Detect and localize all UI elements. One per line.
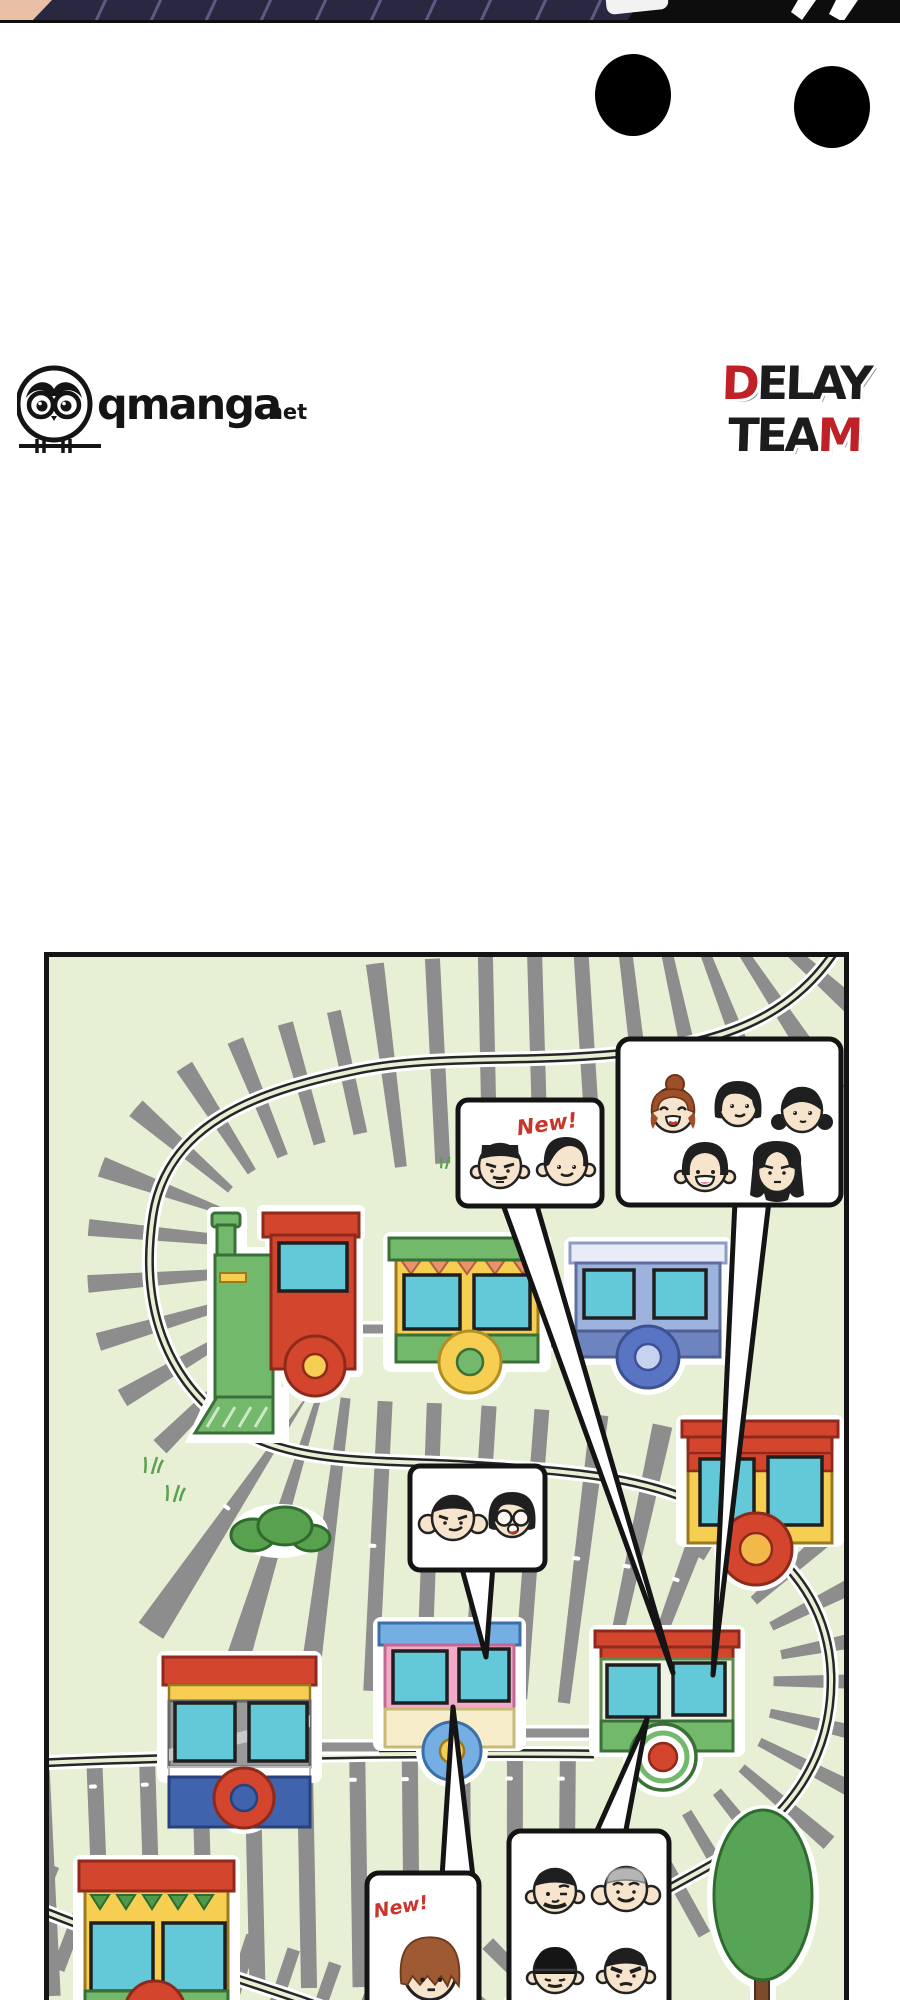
window-right	[673, 1663, 725, 1715]
window-right	[654, 1270, 706, 1318]
loco-hub	[303, 1354, 327, 1378]
train-map-panel: New!	[44, 952, 849, 2000]
qmanga-logo: qmanga .net	[17, 360, 347, 464]
window-left	[175, 1703, 235, 1761]
window-left	[607, 1665, 659, 1717]
roof	[379, 1623, 520, 1645]
roof	[163, 1657, 316, 1685]
hub	[740, 1533, 772, 1565]
strip-bottom-edge	[0, 20, 900, 23]
delay-team-text-group: DELAY TEAM DELAY TEAM	[719, 356, 878, 465]
roof	[79, 1861, 234, 1891]
window-left	[393, 1651, 447, 1703]
bubble-bottom-new: New!	[367, 1873, 479, 2000]
roof-top	[682, 1421, 838, 1437]
qmanga-suffix: .net	[260, 400, 307, 424]
cab-roof	[263, 1213, 359, 1237]
wagon-yellow-bunting	[73, 1855, 240, 2000]
window-right	[249, 1703, 307, 1761]
delay-red-letter: D	[721, 356, 759, 410]
cab-window	[279, 1243, 347, 1291]
window-right	[474, 1275, 530, 1329]
window-left	[404, 1275, 460, 1329]
qmanga-wordmark: qmanga	[97, 380, 280, 430]
bubble-top-group	[618, 1039, 841, 1205]
window-left	[584, 1270, 634, 1318]
roof	[570, 1243, 726, 1263]
owl-glint-right	[62, 402, 66, 406]
delay-line: DELAY	[721, 356, 875, 410]
train-map-art: New!	[49, 957, 844, 2000]
face-person-shaggy	[401, 1937, 460, 2000]
owl-pupil-left	[37, 401, 48, 412]
hub	[649, 1743, 677, 1771]
team-red-letter: M	[816, 408, 861, 462]
window-left	[91, 1923, 153, 1991]
beat-dot-2	[794, 66, 870, 148]
window-right	[163, 1923, 225, 1991]
roof-lower	[688, 1437, 832, 1453]
delay-dark-letters: ELAY	[756, 356, 875, 410]
wagon-navy-gray	[157, 1651, 322, 1834]
trim	[169, 1685, 310, 1701]
previous-panel-strip	[0, 0, 900, 23]
bubble-bottom-group	[509, 1831, 669, 2000]
hub	[635, 1344, 661, 1370]
face-woman-longhair	[750, 1141, 804, 1202]
hub	[231, 1785, 257, 1811]
owl-pupil-right	[61, 401, 72, 412]
bubble-mid-pair	[410, 1466, 545, 1570]
delay-team-logo: DELAY TEAM DELAY TEAM	[700, 352, 895, 470]
bubble-top-new: New!	[458, 1100, 602, 1206]
hub	[457, 1349, 483, 1375]
owl-glint-left	[38, 402, 42, 406]
boiler-stripe	[220, 1273, 246, 1282]
webtoon-page: qmanga .net DELAY TEAM DELAY TEAM	[0, 0, 900, 2000]
window-right	[768, 1457, 822, 1525]
beat-dot-1	[595, 54, 671, 136]
team-line: TEAM	[727, 408, 861, 462]
team-dark-letters: TEA	[727, 408, 822, 462]
